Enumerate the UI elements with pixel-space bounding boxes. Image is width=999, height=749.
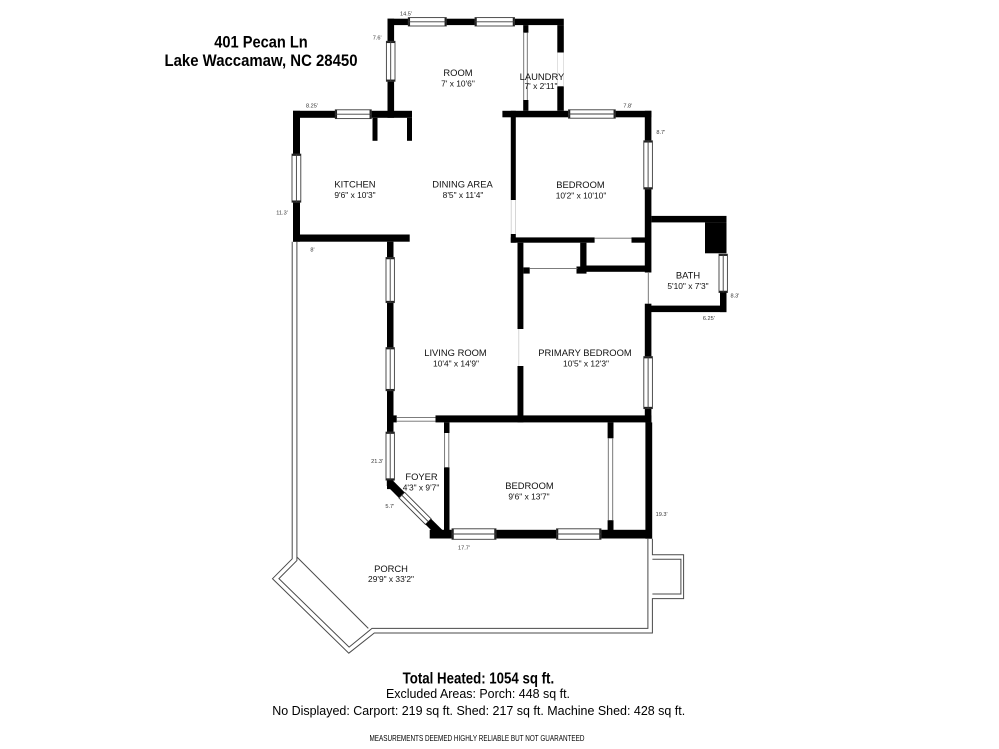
svg-text:Total Heated: 1054 sq ft.: Total Heated: 1054 sq ft. — [403, 671, 555, 688]
svg-text:10'4" x 14'9": 10'4" x 14'9" — [433, 358, 479, 368]
svg-text:8'5" x 11'4": 8'5" x 11'4" — [443, 190, 484, 200]
svg-text:8.3': 8.3' — [730, 293, 739, 299]
svg-text:5'10" x 7'3": 5'10" x 7'3" — [667, 281, 708, 291]
svg-text:10'2" x 10'10": 10'2" x 10'10" — [556, 190, 607, 200]
svg-text:FOYER: FOYER — [405, 471, 438, 482]
svg-text:Excluded Areas: Porch: 448 sq: Excluded Areas: Porch: 448 sq ft. — [386, 686, 570, 701]
svg-text:10'5" x 12'3": 10'5" x 12'3" — [563, 358, 609, 368]
svg-text:MEASUREMENTS DEEMED HIGHLY REL: MEASUREMENTS DEEMED HIGHLY RELIABLE BUT … — [370, 733, 585, 743]
svg-text:PORCH: PORCH — [374, 563, 408, 574]
svg-text:5.7': 5.7' — [385, 504, 394, 510]
svg-text:PRIMARY BEDROOM: PRIMARY BEDROOM — [538, 347, 632, 358]
svg-text:4'3" x 9'7": 4'3" x 9'7" — [403, 483, 440, 493]
svg-text:KITCHEN: KITCHEN — [334, 179, 375, 190]
svg-text:9'6" x 13'7": 9'6" x 13'7" — [508, 491, 549, 501]
svg-text:14.5': 14.5' — [400, 12, 412, 18]
svg-text:401 Pecan Ln: 401 Pecan Ln — [214, 34, 308, 52]
svg-text:7.8': 7.8' — [623, 103, 632, 109]
svg-text:29'9" x 33'2": 29'9" x 33'2" — [368, 574, 414, 584]
svg-text:7' x 2'11": 7' x 2'11" — [524, 81, 557, 91]
svg-text:17.7': 17.7' — [458, 546, 470, 552]
svg-text:8.25': 8.25' — [306, 103, 318, 109]
svg-text:No Displayed: Carport: 219 sq: No Displayed: Carport: 219 sq ft. Shed: … — [272, 703, 685, 718]
svg-text:9'6" x 10'3": 9'6" x 10'3" — [334, 190, 375, 200]
svg-text:ROOM: ROOM — [443, 67, 472, 78]
svg-text:Lake Waccamaw, NC 28450: Lake Waccamaw, NC 28450 — [165, 52, 358, 70]
svg-text:21.3': 21.3' — [371, 459, 383, 465]
svg-text:7' x 10'6": 7' x 10'6" — [441, 79, 475, 89]
svg-text:BATH: BATH — [676, 270, 700, 281]
svg-text:6.25': 6.25' — [703, 316, 715, 322]
svg-text:7.6': 7.6' — [373, 36, 382, 42]
svg-text:19.3': 19.3' — [656, 512, 668, 518]
svg-text:BEDROOM: BEDROOM — [505, 480, 554, 491]
svg-text:8': 8' — [310, 247, 314, 253]
svg-text:BEDROOM: BEDROOM — [556, 179, 605, 190]
svg-text:LIVING ROOM: LIVING ROOM — [424, 347, 487, 358]
svg-text:DINING AREA: DINING AREA — [432, 179, 493, 190]
svg-text:8.7': 8.7' — [656, 130, 665, 136]
svg-text:11.3': 11.3' — [276, 211, 288, 217]
